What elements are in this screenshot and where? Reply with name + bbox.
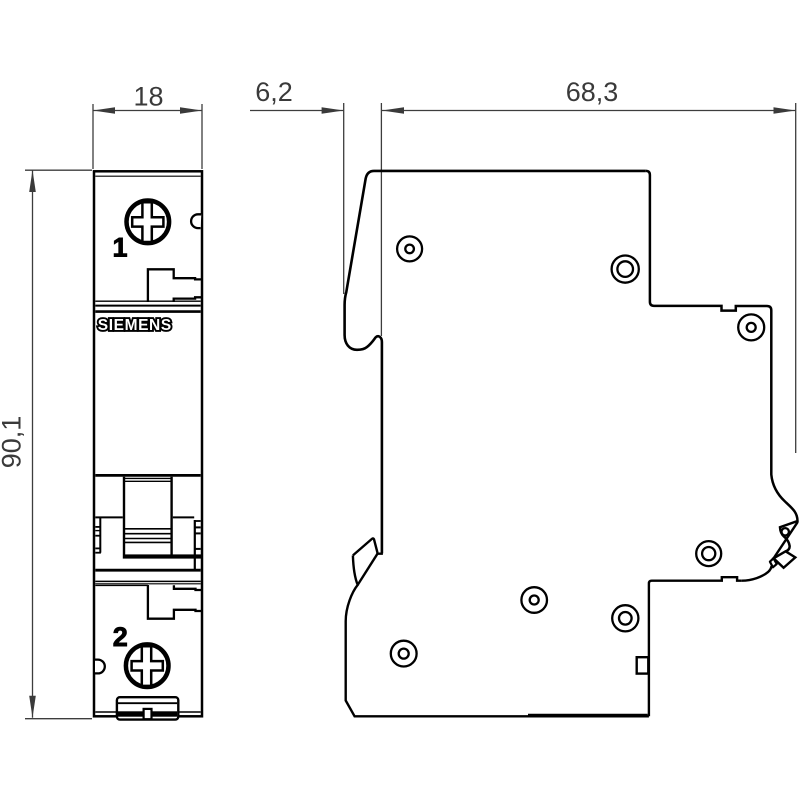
svg-text:6,2: 6,2: [255, 77, 293, 107]
svg-text:1: 1: [112, 232, 127, 262]
svg-text:SIEMENS: SIEMENS: [98, 317, 172, 334]
svg-text:90,1: 90,1: [0, 416, 27, 469]
svg-text:18: 18: [133, 82, 163, 112]
svg-text:68,3: 68,3: [566, 77, 619, 107]
svg-text:2: 2: [113, 622, 128, 652]
